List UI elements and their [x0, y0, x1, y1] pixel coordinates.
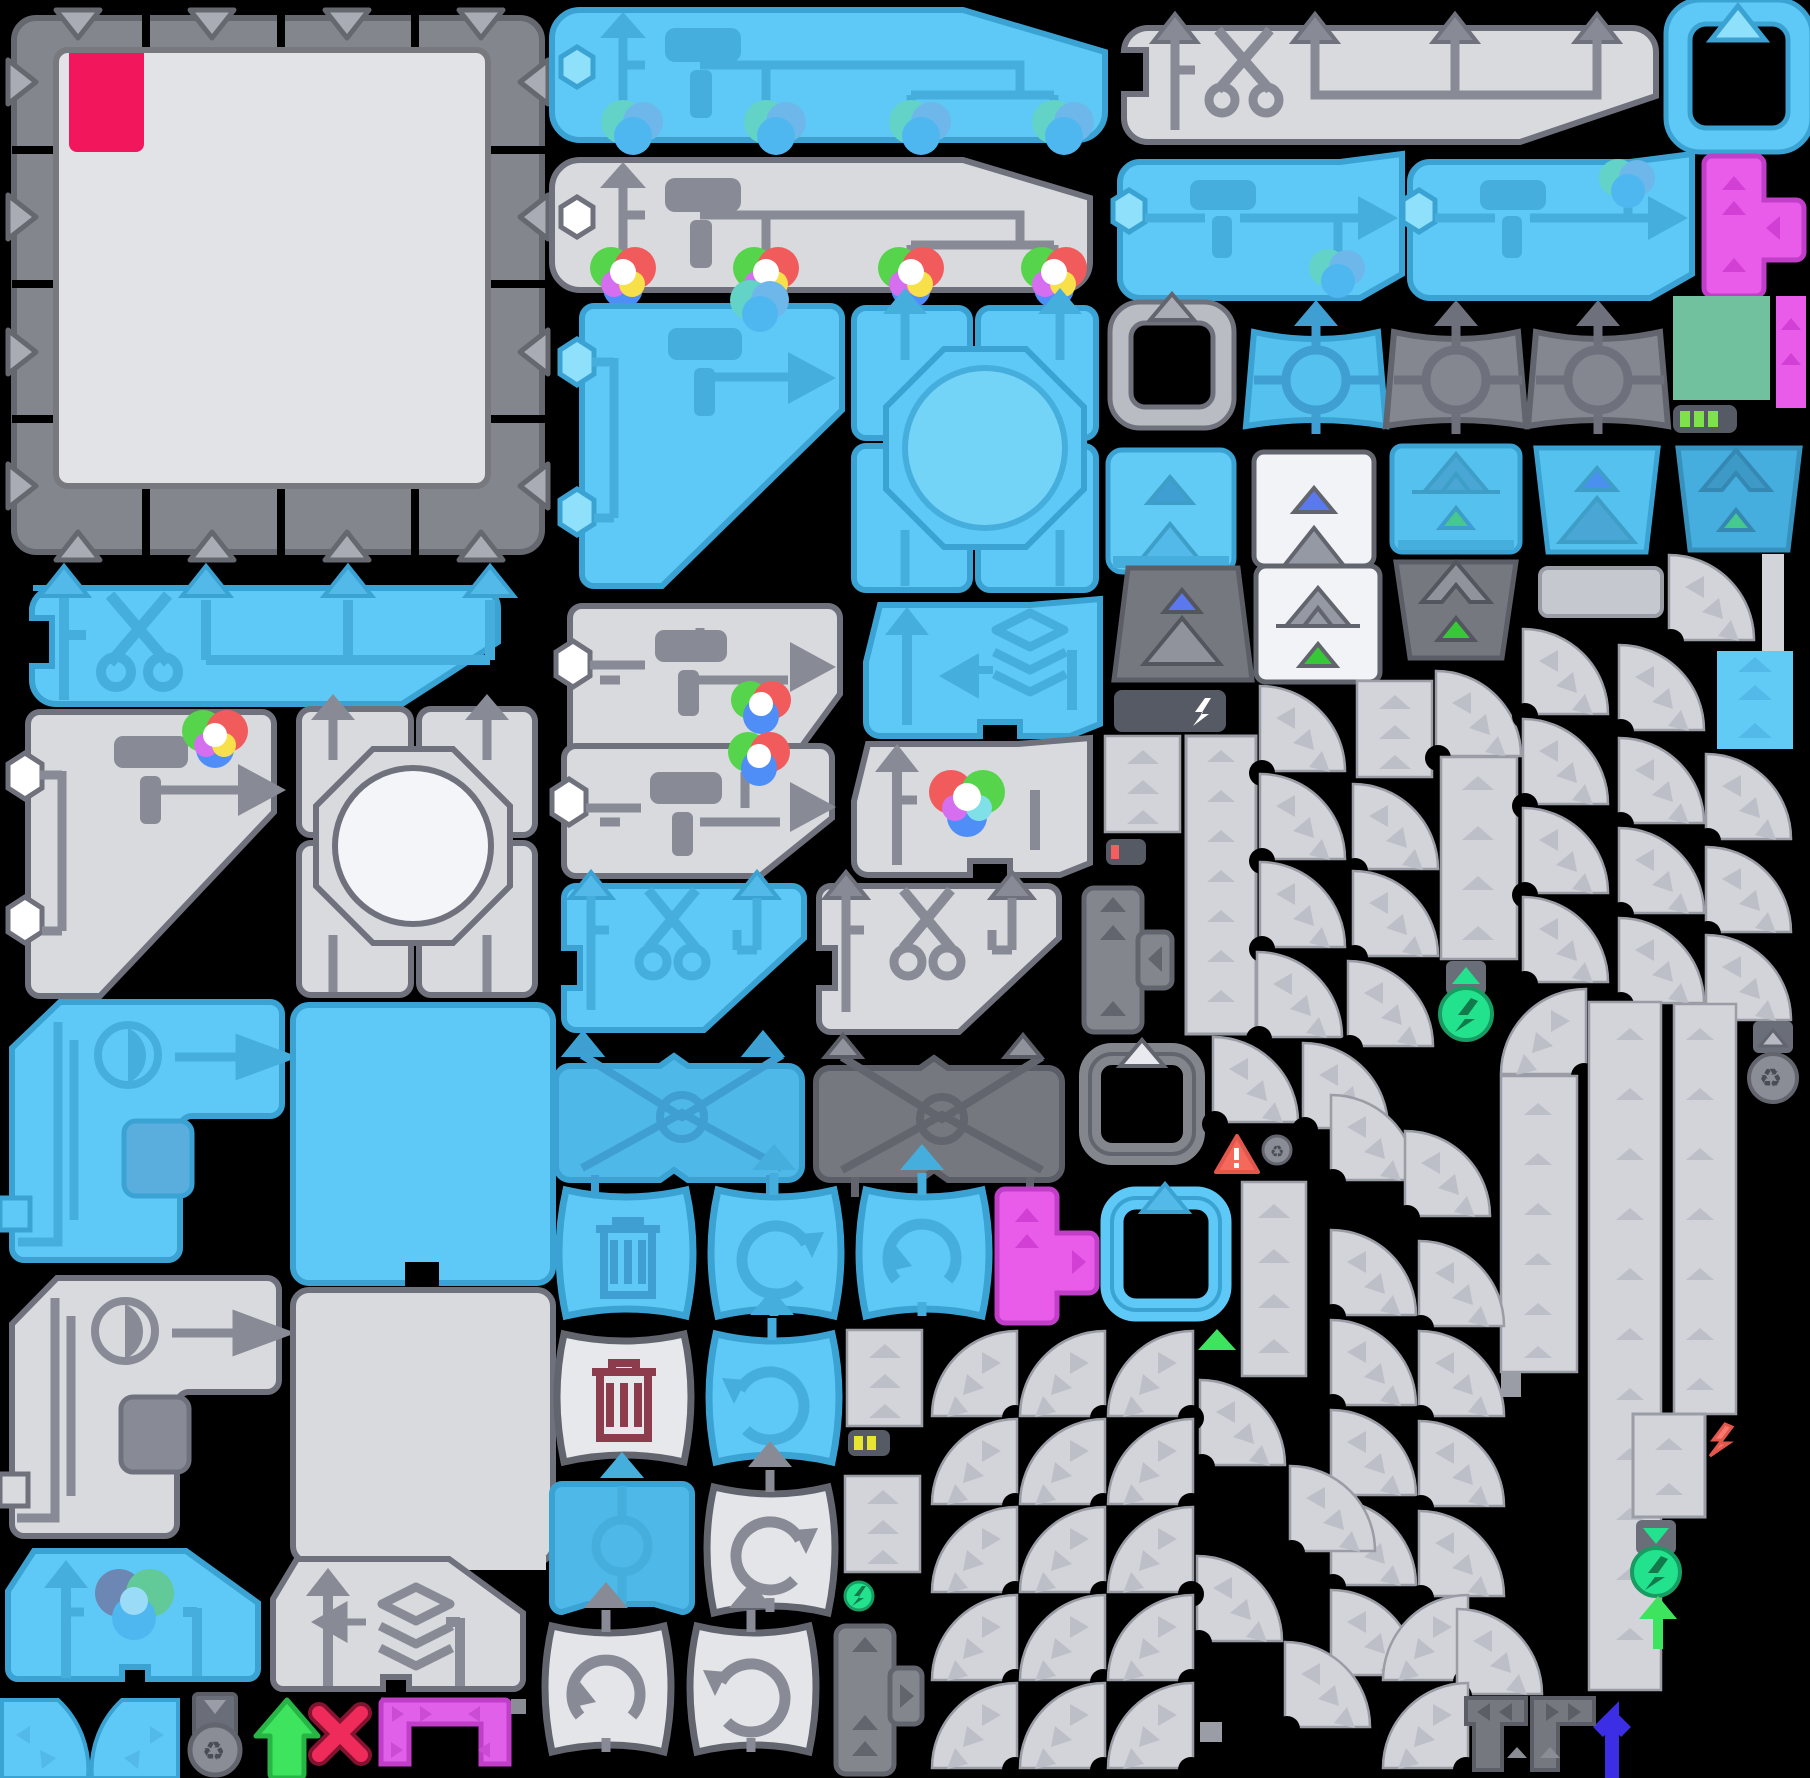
svg-text:♻: ♻ [1270, 1144, 1284, 1161]
svg-text:♻: ♻ [202, 1736, 225, 1766]
svg-text:♻: ♻ [1759, 1063, 1782, 1093]
